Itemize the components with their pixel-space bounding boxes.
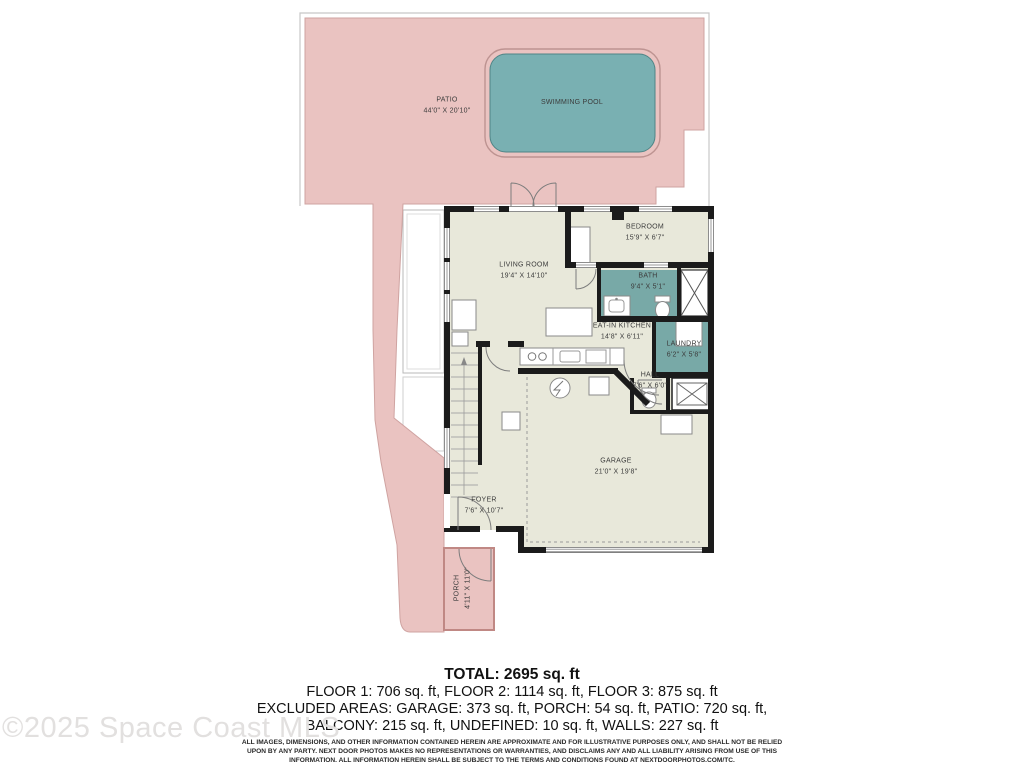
bedroom-closet [570, 227, 590, 265]
room-label-porch: PORCH 4'11" X 11'0" [453, 567, 474, 609]
balcony-outline [403, 210, 444, 451]
elevator-xbox [672, 378, 712, 410]
room-label-swimming-pool: SWIMMING POOL [541, 98, 603, 109]
living-room-fixture [452, 300, 476, 330]
shower-xbox [681, 270, 708, 316]
room-label-bath: BATH 9'4" X 5'1" [631, 272, 666, 293]
kitchen-island [546, 308, 592, 336]
room-label-patio: PATIO 44'0" X 20'10" [424, 96, 471, 117]
room-label-laundry: LAUNDRY 6'2" X 5'8" [666, 340, 701, 361]
floor-plan-page: PATIO 44'0" X 20'10" SWIMMING POOL LIVIN… [0, 0, 1024, 768]
room-label-hall: HALL 7'6" X 6'0" [633, 371, 668, 392]
water-heater [550, 378, 570, 398]
watermark: ©2025 Space Coast MLS [2, 712, 340, 745]
room-label-foyer: FOYER 7'6" X 10'7" [465, 496, 504, 517]
total-area: TOTAL: 2695 sq. ft [0, 666, 1024, 684]
floor-areas: FLOOR 1: 706 sq. ft, FLOOR 2: 1114 sq. f… [0, 684, 1024, 701]
toilet-bowl [656, 302, 670, 319]
room-label-living-room: LIVING ROOM 19'4" X 14'10" [499, 261, 548, 282]
room-label-eat-in-kitchen: EAT-IN KITCHEN 14'8" X 6'11" [593, 322, 651, 343]
floor-plan-graphic [0, 0, 1024, 768]
room-label-garage: GARAGE 21'0" X 19'8" [595, 457, 638, 478]
room-label-bedroom: BEDROOM 15'9" X 6'7" [626, 223, 665, 244]
